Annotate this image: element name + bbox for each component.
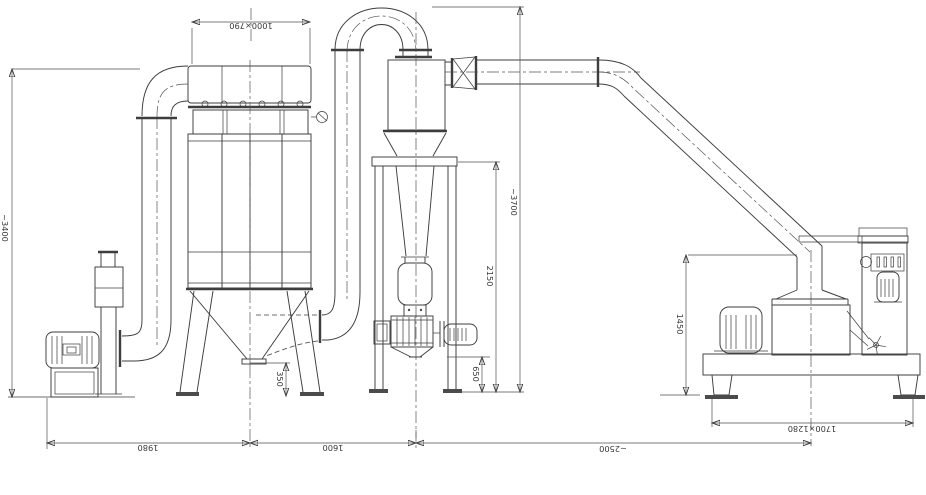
motor-nameplate bbox=[63, 344, 80, 355]
foot-pad bbox=[893, 395, 925, 399]
classifier-motor bbox=[877, 272, 899, 302]
dim-label-valve-clearance: 650 bbox=[471, 366, 481, 382]
top-frame bbox=[799, 236, 908, 242]
base-leg bbox=[712, 375, 732, 395]
base-frame bbox=[703, 354, 920, 375]
dim-label-span-fan-filter: 1980 bbox=[138, 443, 159, 453]
drawing-sheet: 1000×790 ~3400 ~3700 2150 650 350 1450 1 bbox=[0, 0, 926, 495]
dim-label-span-filter-cyclone: 1600 bbox=[323, 443, 344, 453]
cyclone-inlet-duct bbox=[445, 56, 822, 257]
valve-side-flange bbox=[374, 321, 390, 344]
dim-label-filter-top: 1000×790 bbox=[229, 21, 272, 31]
dim-label-mill-footprint: 1700×1280 bbox=[788, 424, 837, 434]
fan-base bbox=[51, 368, 98, 397]
foot-pad bbox=[176, 392, 199, 396]
hopper-flange bbox=[772, 299, 848, 305]
indicator-light bbox=[884, 257, 887, 267]
dim-label-total-height: ~3700 bbox=[509, 188, 519, 216]
bag-filter bbox=[176, 60, 328, 396]
valve-neck bbox=[404, 305, 426, 316]
baghouse-body bbox=[188, 134, 311, 288]
fan-inlet-elbow bbox=[122, 320, 171, 361]
diagonal-convey-pipe bbox=[624, 78, 822, 257]
dimensions: 1000×790 ~3400 ~3700 2150 650 350 1450 1 bbox=[0, 7, 913, 454]
dim-label-hopper-clearance: 350 bbox=[275, 371, 285, 387]
clean-air-plenum bbox=[188, 66, 311, 103]
cabinet-top-upstand bbox=[859, 228, 907, 236]
support-legs bbox=[375, 166, 456, 389]
discharge-bin bbox=[398, 263, 432, 305]
indicator-panel bbox=[871, 254, 904, 271]
indicator-light bbox=[877, 257, 880, 267]
fan-motor bbox=[46, 332, 99, 368]
foot-pad bbox=[300, 392, 324, 396]
exhaust-pipe-and-fan bbox=[8, 66, 188, 397]
reducer-cone bbox=[453, 57, 475, 89]
mill-unit bbox=[703, 228, 925, 446]
downcomer-pipe bbox=[142, 118, 171, 320]
valve-motor bbox=[444, 324, 477, 345]
dim-label-mill-inlet-height: 1450 bbox=[675, 314, 685, 335]
base-leg bbox=[898, 375, 918, 395]
foot-pad bbox=[705, 395, 738, 399]
fan-outlet-duct bbox=[101, 307, 116, 394]
leg-elbow bbox=[322, 292, 360, 340]
valve-discharge bbox=[391, 347, 433, 357]
dim-label-left-height: ~3400 bbox=[0, 214, 10, 242]
feed-chute bbox=[797, 246, 822, 290]
header-box bbox=[193, 110, 308, 134]
indicator-light bbox=[898, 257, 901, 267]
handwheel-icon bbox=[867, 336, 886, 355]
dim-label-span-cyclone-mill: ~2500 bbox=[599, 444, 627, 454]
cyclone-cone bbox=[384, 133, 446, 156]
foot-pad bbox=[443, 389, 462, 393]
valve-motor-flange bbox=[440, 321, 444, 347]
support-table-top bbox=[372, 157, 457, 166]
indicator-light bbox=[891, 257, 894, 267]
outlet-elbow bbox=[142, 66, 188, 116]
cyclone-cylinder bbox=[388, 60, 445, 130]
cad-drawing: 1000×790 ~3400 ~3700 2150 650 350 1450 1 bbox=[0, 0, 926, 495]
dim-label-frame-height: 2150 bbox=[485, 266, 495, 287]
silencer-body bbox=[95, 267, 123, 307]
lower-cone bbox=[396, 166, 434, 256]
foot-pad bbox=[369, 389, 388, 393]
filter-feed-leg bbox=[335, 50, 360, 292]
gooseneck-outer bbox=[335, 8, 428, 50]
duct-bend bbox=[599, 84, 624, 96]
